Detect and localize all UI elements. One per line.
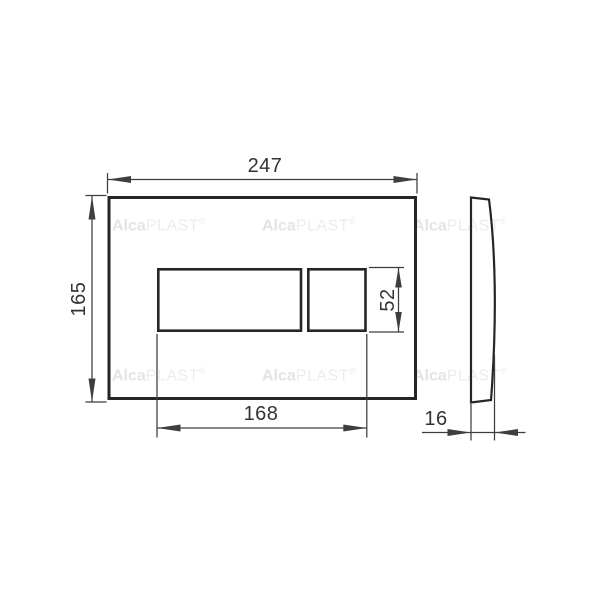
dim-label-plate-depth: 16 bbox=[424, 409, 447, 429]
arrowhead-right-icon bbox=[448, 429, 472, 436]
dim-label-button-group-width: 168 bbox=[244, 404, 279, 424]
large-flush-button bbox=[158, 269, 301, 330]
arrowhead-down-icon bbox=[89, 379, 96, 403]
technical-drawing-page: AlcaPLAST® AlcaPLAST® AlcaPLAST® AlcaPLA… bbox=[0, 0, 600, 600]
arrowhead-down-icon bbox=[395, 312, 402, 332]
dim-label-overall-height: 165 bbox=[69, 282, 89, 317]
arrowhead-up-icon bbox=[89, 196, 96, 220]
front-plate-outline bbox=[109, 198, 416, 399]
side-profile-outline bbox=[471, 198, 495, 403]
arrowhead-right-icon bbox=[343, 425, 367, 432]
drawing-linework bbox=[0, 0, 600, 600]
arrowhead-left-icon bbox=[108, 176, 132, 183]
dim-label-button-height: 52 bbox=[378, 288, 398, 311]
arrowhead-right-icon bbox=[394, 176, 418, 183]
arrowhead-up-icon bbox=[395, 268, 402, 288]
dim-label-overall-width: 247 bbox=[248, 156, 283, 176]
arrowhead-left-icon bbox=[157, 425, 181, 432]
arrowhead-left-icon bbox=[495, 429, 519, 436]
small-flush-button bbox=[308, 269, 365, 330]
